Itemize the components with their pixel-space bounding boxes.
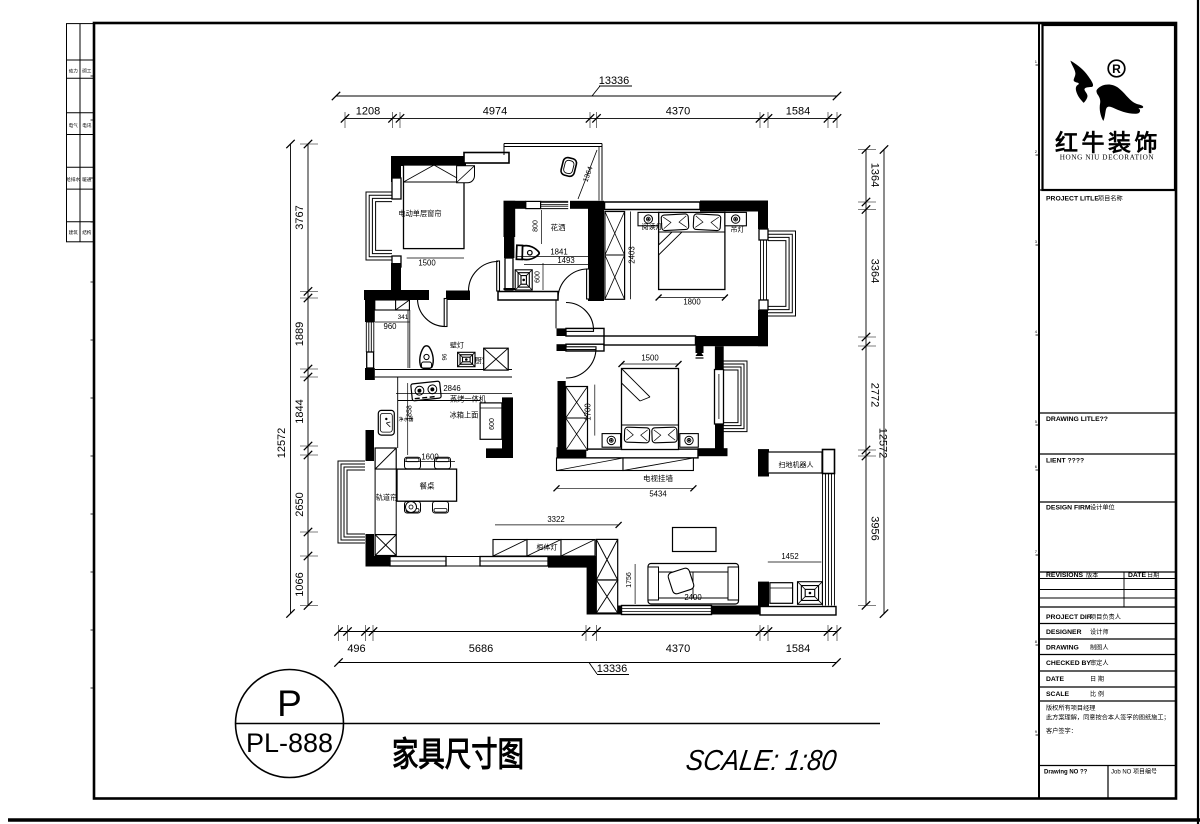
svg-text:12572: 12572 xyxy=(276,428,288,459)
svg-text:设计师: 设计师 xyxy=(1090,628,1109,636)
svg-text:800: 800 xyxy=(533,220,540,232)
svg-text:砌工: 砌工 xyxy=(82,68,92,75)
svg-text:红牛装饰: 红牛装饰 xyxy=(1055,130,1161,156)
svg-text:96: 96 xyxy=(442,353,449,360)
svg-text:3767: 3767 xyxy=(294,205,306,229)
svg-text:日期: 日期 xyxy=(1147,571,1159,579)
svg-text:1858: 1858 xyxy=(407,405,414,421)
svg-text:PROJECT LITLE: PROJECT LITLE xyxy=(1046,196,1099,203)
svg-text:1844: 1844 xyxy=(294,399,306,423)
svg-text:1700: 1700 xyxy=(584,403,593,421)
svg-text:轨道帘: 轨道帘 xyxy=(376,493,398,502)
svg-text:P: P xyxy=(277,683,302,724)
svg-text:SCALE: 1:80: SCALE: 1:80 xyxy=(684,745,838,777)
svg-text:1756: 1756 xyxy=(626,572,633,588)
svg-text:建筑: 建筑 xyxy=(69,229,79,236)
svg-text:3956: 3956 xyxy=(869,516,881,540)
svg-text:蒸烤一体机: 蒸烤一体机 xyxy=(450,395,487,404)
svg-text:比 例: 比 例 xyxy=(1090,690,1104,698)
svg-text:5686: 5686 xyxy=(469,643,493,655)
svg-text:设计单位: 设计单位 xyxy=(1090,504,1115,512)
svg-text:1208: 1208 xyxy=(356,106,380,118)
svg-text:2772: 2772 xyxy=(869,383,881,407)
svg-text:DRAWING LITLE??: DRAWING LITLE?? xyxy=(1046,416,1108,423)
svg-text:1800: 1800 xyxy=(683,298,701,307)
svg-text:341: 341 xyxy=(398,314,409,321)
svg-text:2650: 2650 xyxy=(294,492,306,516)
svg-text:1493: 1493 xyxy=(557,256,574,265)
svg-text:1500: 1500 xyxy=(641,354,659,363)
svg-text:960: 960 xyxy=(383,322,397,331)
svg-text:花洒: 花洒 xyxy=(551,222,566,232)
svg-text:13336: 13336 xyxy=(597,663,628,675)
svg-text:此方案理解，同意按合本人签字的图纸施工；: 此方案理解，同意按合本人签字的图纸施工； xyxy=(1046,714,1170,722)
svg-text:R: R xyxy=(1112,62,1121,76)
svg-text:版本: 版本 xyxy=(1086,571,1098,579)
svg-text:动力: 动力 xyxy=(69,68,79,75)
svg-text:1452: 1452 xyxy=(781,552,798,561)
svg-text:1500: 1500 xyxy=(418,259,436,268)
svg-text:1066: 1066 xyxy=(294,572,306,596)
svg-text:2846: 2846 xyxy=(443,384,460,393)
svg-text:HONG NIU DECORATION: HONG NIU DECORATION xyxy=(1060,154,1155,162)
svg-text:结构: 结构 xyxy=(82,229,92,236)
svg-text:3322: 3322 xyxy=(547,515,564,524)
svg-text:电视挂墙: 电视挂墙 xyxy=(643,473,673,483)
svg-text:DATE: DATE xyxy=(1128,572,1146,579)
svg-text:壁灯: 壁灯 xyxy=(450,341,464,350)
svg-text:Job NO 项目编号: Job NO 项目编号 xyxy=(1111,768,1157,776)
svg-text:制图人: 制图人 xyxy=(1090,644,1109,652)
svg-text:2400: 2400 xyxy=(684,593,702,602)
svg-text:600: 600 xyxy=(489,418,496,430)
svg-text:版权所有项目经理: 版权所有项目经理 xyxy=(1046,704,1096,712)
svg-text:4370: 4370 xyxy=(666,106,690,118)
svg-text:1600: 1600 xyxy=(421,453,439,462)
svg-text:LIENT ????: LIENT ???? xyxy=(1046,458,1084,465)
svg-text:5434: 5434 xyxy=(649,490,667,499)
svg-text:暖通: 暖通 xyxy=(82,176,92,183)
svg-text:4370: 4370 xyxy=(666,643,690,655)
svg-text:家具尺寸图: 家具尺寸图 xyxy=(392,736,524,774)
svg-text:13336: 13336 xyxy=(599,75,630,87)
svg-text:电动单层窗帘: 电动单层窗帘 xyxy=(398,209,441,218)
svg-text:CHECKED BY: CHECKED BY xyxy=(1046,660,1091,667)
svg-text:DESIGN FIRM: DESIGN FIRM xyxy=(1046,505,1091,512)
svg-text:吊灯: 吊灯 xyxy=(731,225,745,234)
svg-text:12572: 12572 xyxy=(877,428,889,459)
svg-text:1584: 1584 xyxy=(786,106,810,118)
svg-text:客户签字：: 客户签字： xyxy=(1046,727,1077,735)
svg-text:冰箱上面: 冰箱上面 xyxy=(450,411,479,420)
svg-text:扫地机器人: 扫地机器人 xyxy=(779,460,814,469)
svg-text:柜体灯: 柜体灯 xyxy=(537,543,558,552)
svg-text:1364: 1364 xyxy=(869,163,881,187)
svg-text:1889: 1889 xyxy=(294,322,306,346)
svg-text:PL-888: PL-888 xyxy=(246,728,333,758)
svg-text:1584: 1584 xyxy=(786,643,810,655)
svg-text:餐桌: 餐桌 xyxy=(420,481,435,491)
svg-text:SCALE: SCALE xyxy=(1046,691,1070,698)
svg-text:阅读灯: 阅读灯 xyxy=(642,222,663,231)
svg-text:项目负责人: 项目负责人 xyxy=(1090,613,1121,621)
svg-text:电气: 电气 xyxy=(69,122,79,128)
svg-text:给排水: 给排水 xyxy=(66,176,80,183)
svg-text:项目名称: 项目名称 xyxy=(1098,195,1123,203)
svg-text:4974: 4974 xyxy=(483,106,507,118)
svg-text:DATE: DATE xyxy=(1046,676,1064,683)
svg-text:496: 496 xyxy=(347,643,365,655)
svg-text:电讯: 电讯 xyxy=(82,122,92,129)
svg-text:PROJECT DIR: PROJECT DIR xyxy=(1046,614,1092,621)
svg-text:REVISIONS: REVISIONS xyxy=(1046,572,1083,579)
svg-text:600: 600 xyxy=(535,271,542,283)
svg-text:Drawing NO ??: Drawing NO ?? xyxy=(1044,770,1088,776)
svg-text:2403: 2403 xyxy=(628,246,637,263)
svg-text:3364: 3364 xyxy=(869,259,881,283)
svg-text:DESIGNER: DESIGNER xyxy=(1046,629,1082,636)
svg-text:审定人: 审定人 xyxy=(1090,659,1109,667)
svg-text:DRAWING: DRAWING xyxy=(1046,645,1079,652)
svg-text:日 期: 日 期 xyxy=(1090,675,1104,683)
